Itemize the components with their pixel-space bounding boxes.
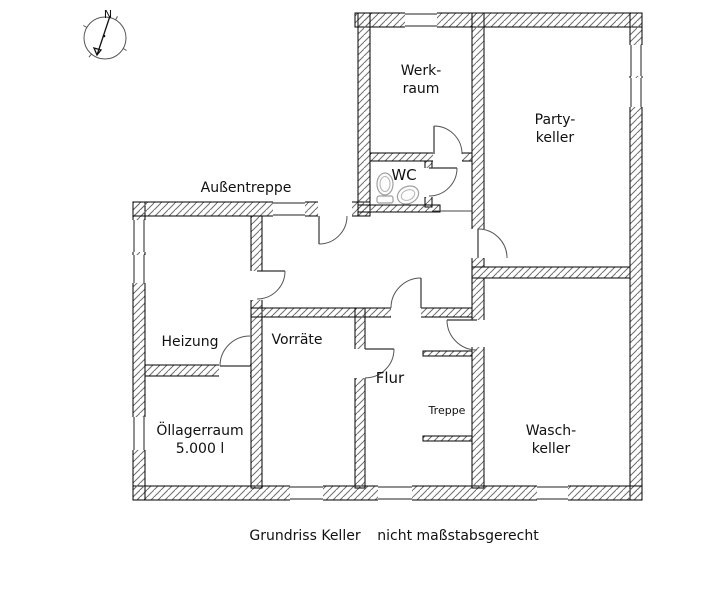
toilet-cistern-icon bbox=[377, 196, 393, 203]
compass-tick bbox=[116, 16, 118, 19]
room-label-aussentreppe: Außentreppe bbox=[201, 179, 292, 197]
wall-segment bbox=[358, 13, 370, 216]
room-label-partykeller: Party- keller bbox=[535, 111, 576, 147]
sink-icon bbox=[394, 183, 421, 208]
window-opening bbox=[131, 417, 147, 450]
window-opening bbox=[628, 45, 644, 76]
plan-title: Grundriss Keller bbox=[249, 528, 360, 544]
door-swing-arc bbox=[434, 126, 462, 154]
room-label-werkraum: Werk- raum bbox=[401, 62, 442, 98]
floor-plan-svg: N bbox=[0, 0, 724, 600]
compass-north-label: N bbox=[104, 8, 112, 21]
wall-segment bbox=[423, 351, 472, 356]
room-label-flur: Flur bbox=[376, 369, 404, 387]
wall-segment bbox=[355, 308, 365, 488]
door-opening bbox=[470, 320, 486, 347]
window-opening bbox=[628, 78, 644, 107]
room-label-treppe: Treppe bbox=[429, 402, 466, 420]
door-swing-arc bbox=[220, 336, 250, 366]
room-label-wc: WC bbox=[391, 166, 416, 184]
door-opening bbox=[391, 306, 421, 319]
door-swing-arc bbox=[319, 216, 347, 244]
window-opening bbox=[131, 255, 147, 283]
door-swing-arc bbox=[391, 278, 421, 308]
door-opening bbox=[219, 363, 250, 378]
wall-segment bbox=[358, 205, 440, 212]
door-opening bbox=[433, 151, 462, 163]
room-label-heizung: Heizung bbox=[161, 333, 218, 351]
door-opening bbox=[318, 200, 352, 218]
sink-bowl bbox=[394, 183, 421, 208]
room-label-waschkeller: Wasch- keller bbox=[526, 422, 576, 458]
compass-tick bbox=[123, 49, 126, 51]
floor-plan: N AußentreppeWerk- raumParty- kellerWCHe… bbox=[0, 0, 724, 600]
wall-segment bbox=[472, 278, 484, 488]
door-opening bbox=[353, 349, 367, 378]
compass-rose bbox=[83, 16, 126, 59]
plan-scale-note: nicht maßstabsgerecht bbox=[377, 528, 538, 544]
compass-tick bbox=[83, 26, 86, 28]
compass-circle bbox=[84, 17, 126, 59]
door-opening bbox=[423, 168, 434, 197]
wall-segment bbox=[423, 436, 472, 441]
room-label-oellagerraum: Öllagerraum 5.000 l bbox=[156, 422, 243, 458]
wall-segment bbox=[472, 267, 630, 278]
room-label-vorraete: Vorräte bbox=[271, 331, 322, 349]
wall-segment bbox=[355, 13, 642, 27]
compass-tick bbox=[89, 54, 92, 57]
door-opening bbox=[249, 271, 264, 300]
wall-segment bbox=[251, 216, 262, 488]
window-opening bbox=[131, 220, 147, 252]
compass-center-dot bbox=[103, 35, 106, 38]
